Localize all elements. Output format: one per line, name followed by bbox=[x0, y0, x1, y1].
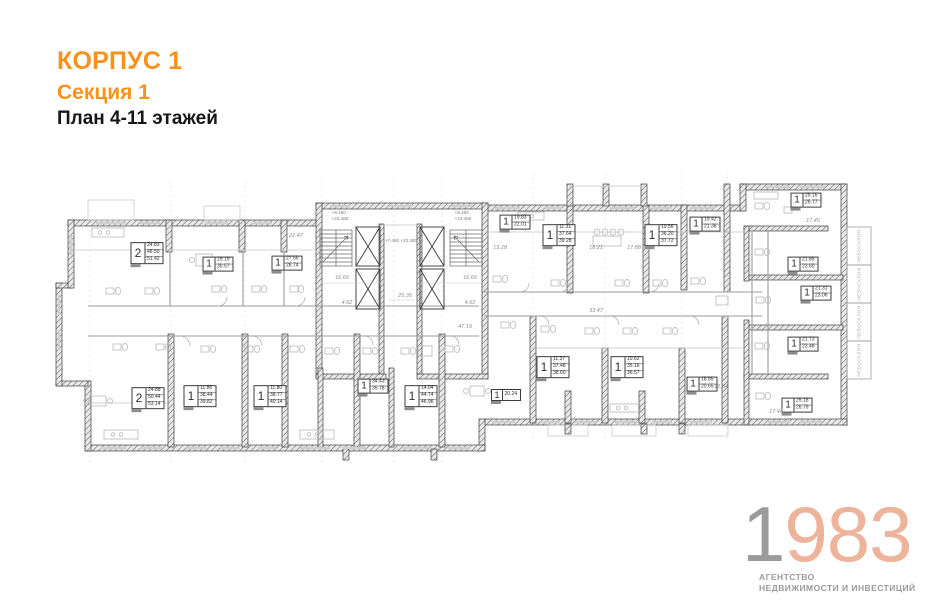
agency-line-2: НЕДВИЖИМОСТИ И ИНВЕСТИЦИЙ bbox=[759, 583, 922, 594]
plan-title: План 4-11 этажей bbox=[57, 108, 218, 130]
dimension-lines bbox=[320, 283, 482, 300]
logo-digits-983: 983 bbox=[784, 490, 911, 578]
section-title: Секция 1 bbox=[57, 81, 218, 105]
page-header: КОРПУС 1 Секция 1 План 4-11 этажей bbox=[57, 48, 218, 130]
stairs bbox=[320, 230, 482, 266]
elevator-shafts bbox=[356, 227, 444, 309]
balconies-layer bbox=[847, 227, 871, 379]
grid-lines bbox=[90, 172, 727, 462]
walls-layer bbox=[56, 184, 847, 460]
building-title: КОРПУС 1 bbox=[57, 48, 218, 75]
page: { "header": { "building": "КОРПУС 1", "s… bbox=[0, 0, 941, 600]
logo-digit-1: 1 bbox=[742, 490, 784, 578]
agency-logo: 1983 АГЕНТСТВО НЕДВИЖИМОСТИ И ИНВЕСТИЦИЙ bbox=[742, 498, 922, 595]
logo-year: 1983 bbox=[742, 498, 922, 570]
tables-chairs bbox=[84, 229, 729, 406]
